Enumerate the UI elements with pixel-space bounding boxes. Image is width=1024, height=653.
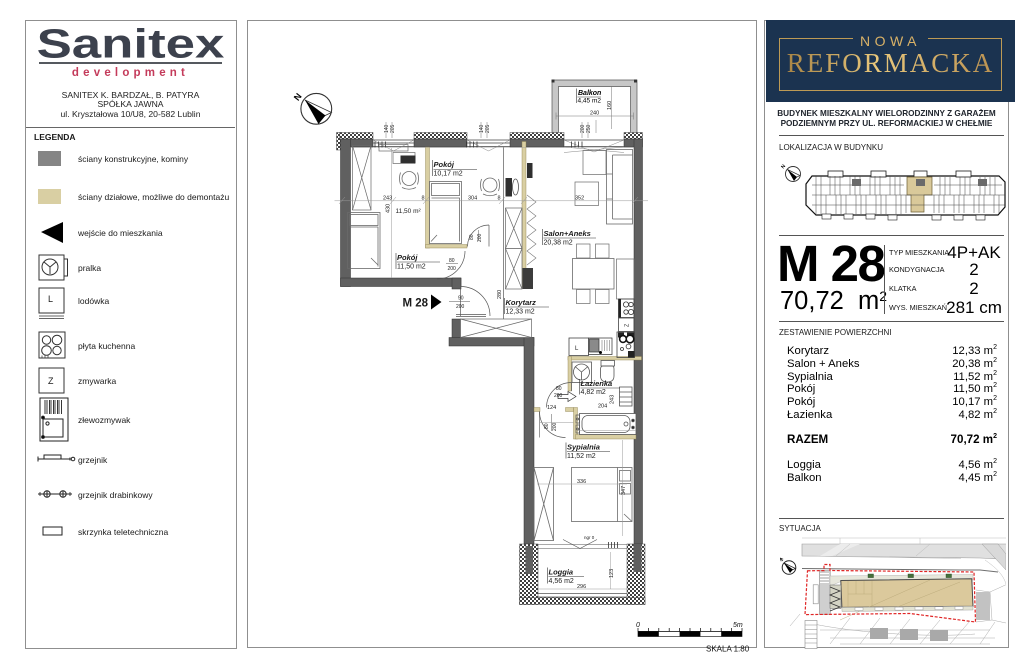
svg-text:243: 243 bbox=[383, 196, 392, 202]
svg-text:280: 280 bbox=[497, 290, 503, 299]
svg-text:10,17 m2: 10,17 m2 bbox=[434, 171, 463, 178]
svg-text:304: 304 bbox=[468, 196, 477, 202]
svg-text:200: 200 bbox=[456, 304, 465, 310]
svg-text:Korytarz: Korytarz bbox=[506, 298, 537, 307]
svg-text:205: 205 bbox=[485, 124, 491, 133]
svg-text:ngr 0: ngr 0 bbox=[584, 535, 595, 540]
svg-text:Łazienka: Łazienka bbox=[580, 379, 613, 388]
svg-text:SKALA 1:80: SKALA 1:80 bbox=[706, 645, 750, 653]
svg-text:296: 296 bbox=[577, 584, 586, 590]
svg-text:200: 200 bbox=[552, 422, 558, 431]
svg-text:200: 200 bbox=[477, 233, 483, 242]
svg-text:Sypialnia: Sypialnia bbox=[567, 443, 600, 452]
svg-text:0: 0 bbox=[636, 622, 640, 629]
svg-text:M 28: M 28 bbox=[403, 298, 429, 310]
svg-text:80: 80 bbox=[449, 258, 455, 264]
svg-text:205: 205 bbox=[390, 124, 396, 133]
svg-text:11,52 m2: 11,52 m2 bbox=[567, 453, 596, 460]
svg-text:430: 430 bbox=[386, 204, 392, 213]
svg-text:160: 160 bbox=[607, 101, 613, 110]
svg-text:11,50 m²: 11,50 m² bbox=[396, 208, 422, 215]
svg-text:123: 123 bbox=[609, 569, 615, 578]
svg-text:347: 347 bbox=[621, 486, 627, 495]
svg-text:N: N bbox=[292, 91, 304, 102]
svg-text:8: 8 bbox=[498, 196, 501, 202]
svg-text:243: 243 bbox=[610, 395, 616, 404]
svg-text:80: 80 bbox=[469, 234, 475, 240]
svg-text:204: 204 bbox=[598, 404, 607, 410]
svg-text:80: 80 bbox=[544, 423, 550, 429]
svg-text:N: N bbox=[780, 163, 787, 170]
svg-text:352: 352 bbox=[575, 196, 584, 202]
svg-text:8: 8 bbox=[422, 196, 425, 202]
svg-text:Z: Z bbox=[625, 323, 631, 327]
svg-text:Pokój: Pokój bbox=[397, 253, 418, 262]
svg-text:4,56 m2: 4,56 m2 bbox=[549, 578, 574, 585]
svg-text:80: 80 bbox=[556, 386, 562, 392]
svg-text:200: 200 bbox=[554, 393, 563, 399]
svg-text:336: 336 bbox=[577, 479, 586, 485]
svg-text:Salon+Aneks: Salon+Aneks bbox=[544, 229, 591, 238]
svg-text:Balkon: Balkon bbox=[578, 90, 601, 97]
svg-text:240: 240 bbox=[590, 111, 599, 117]
svg-text:124: 124 bbox=[547, 405, 556, 411]
svg-text:20,38 m2: 20,38 m2 bbox=[544, 240, 573, 247]
svg-text:11,50 m2: 11,50 m2 bbox=[397, 264, 426, 271]
svg-text:200: 200 bbox=[448, 266, 457, 272]
svg-text:Pokój: Pokój bbox=[434, 160, 455, 169]
svg-text:90: 90 bbox=[458, 296, 464, 302]
svg-text:4,82 m2: 4,82 m2 bbox=[581, 389, 606, 396]
svg-text:4,45 m2: 4,45 m2 bbox=[578, 98, 602, 105]
svg-text:Loggia: Loggia bbox=[549, 568, 574, 577]
svg-text:12,33 m2: 12,33 m2 bbox=[506, 309, 535, 316]
svg-text:5m: 5m bbox=[733, 622, 743, 629]
svg-text:250: 250 bbox=[586, 124, 592, 133]
